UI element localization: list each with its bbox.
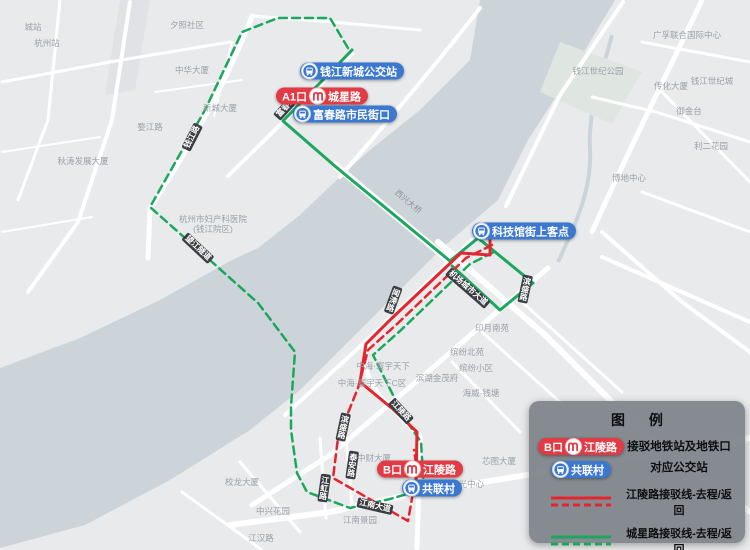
station-label: 共联村 xyxy=(422,480,455,496)
bus-icon xyxy=(303,65,316,78)
legend-desc-line1: 接驳地铁站及地铁口 xyxy=(623,437,735,458)
legend-description: 接驳地铁站及地铁口 对应公交站 xyxy=(623,437,735,479)
bus-icon xyxy=(405,482,418,495)
bus-station-marker: 共联村 xyxy=(551,461,611,478)
metro-exit-label: B口 xyxy=(544,439,563,455)
bus-icon xyxy=(296,108,309,121)
legend-badges: B口江陵路共联村 xyxy=(539,438,623,478)
station-label: 城星路 xyxy=(328,88,361,104)
bus-icon xyxy=(475,225,488,238)
metro-icon xyxy=(567,441,579,453)
legend-desc-line2: 对应公交站 xyxy=(623,458,735,479)
bus-icon xyxy=(554,463,567,476)
station-label: 共联村 xyxy=(571,462,604,478)
metro-exit-label: B口 xyxy=(383,461,402,477)
metro-exit-marker: A1口城星路 xyxy=(276,88,368,105)
bus-station-marker: 共联村 xyxy=(402,480,462,497)
legend-red-route-label: 江陵路接驳线-去程/返回 xyxy=(623,486,735,518)
bus-station-marker: 钱江新城公交站 xyxy=(300,63,404,80)
bus-station-marker: 科技馆街上客点 xyxy=(472,223,576,240)
legend-title: 图 例 xyxy=(539,410,735,430)
station-label: 富春路市民街口 xyxy=(313,106,390,122)
legend-red-line-sample xyxy=(539,494,623,510)
metro-exit-marker: B口江陵路 xyxy=(377,461,463,478)
legend-green-route-label: 城星路接驳线-去程/返回 xyxy=(623,525,735,550)
bus-station-marker: 富春路市民街口 xyxy=(293,106,397,123)
legend-panel: 图 例 B口江陵路共联村 接驳地铁站及地铁口 对应公交站 江陵路接驳线-去程/返… xyxy=(529,401,745,543)
station-label: 科技馆街上客点 xyxy=(492,223,569,239)
metro-icon xyxy=(312,90,324,102)
metro-exit-marker: B口江陵路 xyxy=(538,438,624,455)
legend-green-line-sample xyxy=(539,533,623,549)
metro-icon xyxy=(406,463,418,475)
station-label: 江陵路 xyxy=(423,461,456,477)
route-map: 城站杭州站夕照社区中华大厦新城大厦婺江路秋涛发展大厦杭州市妇产科医院(钱江院区)… xyxy=(0,0,750,550)
metro-exit-label: A1口 xyxy=(282,88,307,104)
station-label: 钱江新城公交站 xyxy=(320,63,397,79)
park-area xyxy=(540,42,642,124)
station-label: 江陵路 xyxy=(584,439,617,455)
